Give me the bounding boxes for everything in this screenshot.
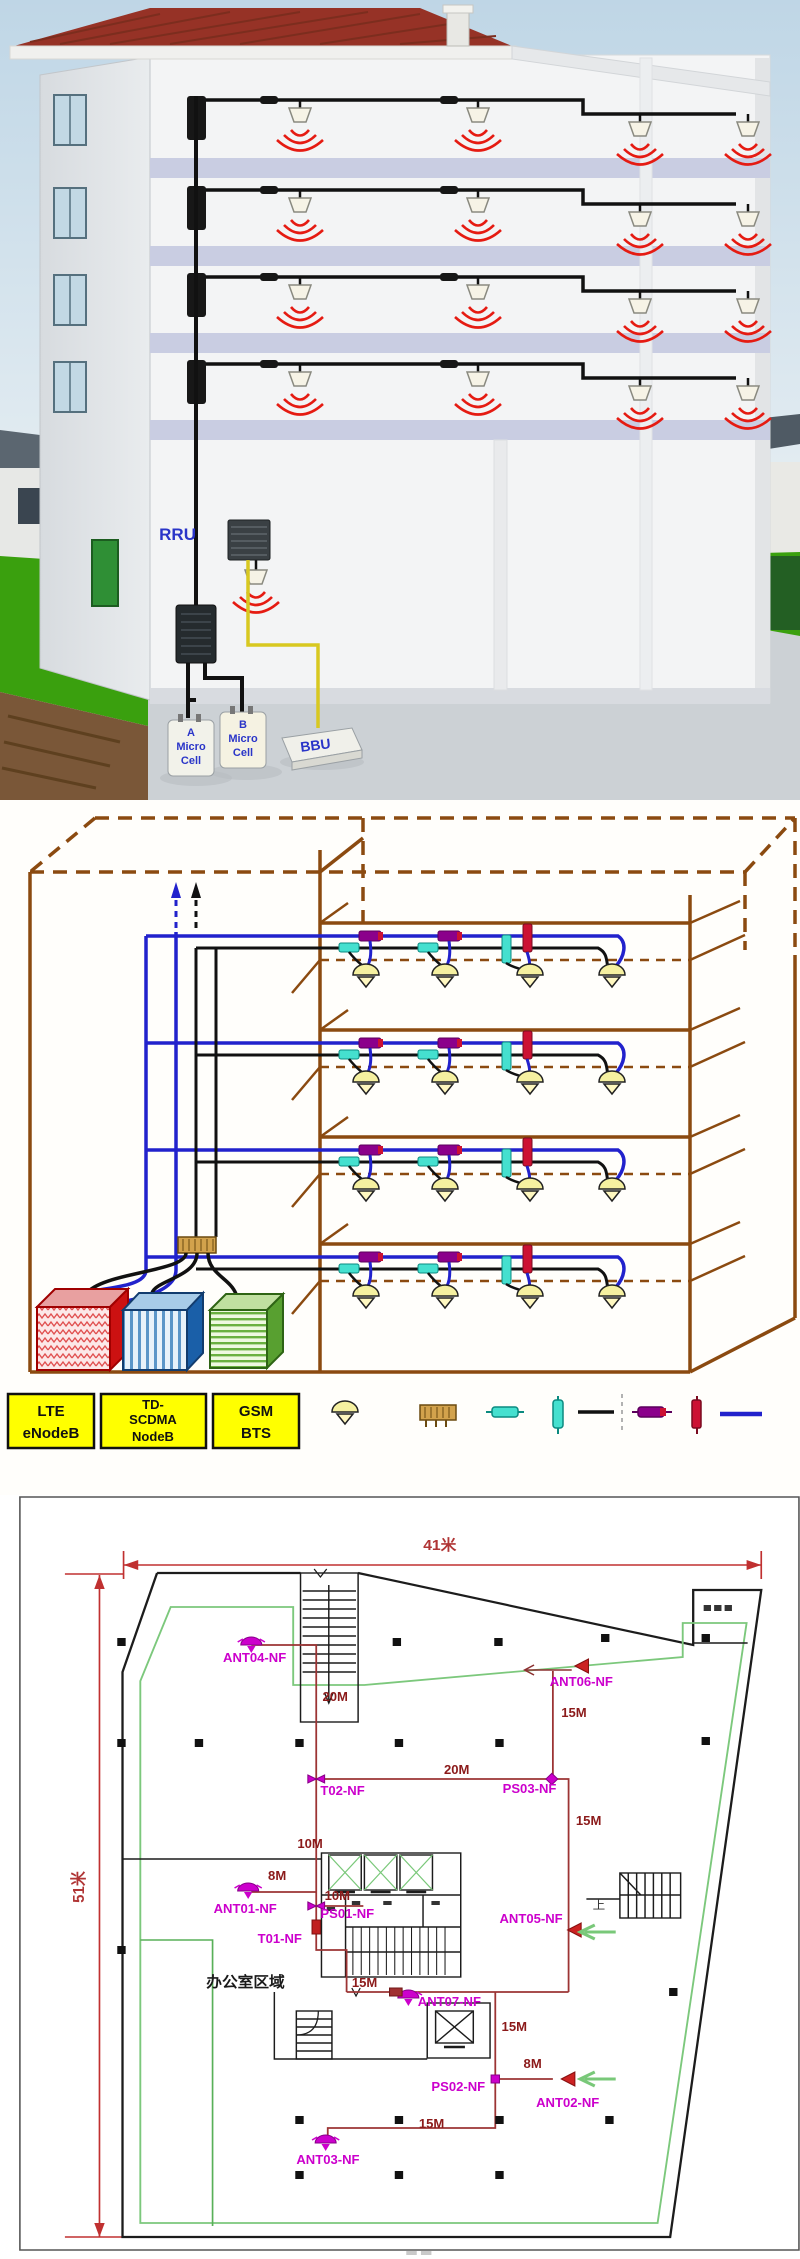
plan-label: ANT07-NF	[418, 1994, 481, 2009]
coupler-teal	[418, 1157, 438, 1166]
coupler-magenta	[438, 1252, 460, 1262]
column-square	[117, 1946, 125, 1954]
building-cutaway-illustration: RRU A Micro Cell B Micro Cell BBU	[0, 0, 800, 800]
td-scdma-nodeb-box	[123, 1293, 203, 1370]
inline-coupler	[260, 186, 278, 194]
plan-label: 15M	[352, 1975, 377, 1990]
splitter-teal	[502, 1149, 511, 1177]
column-square	[295, 2171, 303, 2179]
legend-box-tdscdma: TD- SCDMA NodeB	[101, 1394, 206, 1448]
splitter-teal	[502, 1256, 511, 1284]
splitter-red	[523, 1245, 532, 1273]
legend-splitter2-icon	[692, 1396, 701, 1434]
micro-b-line3: Cell	[233, 747, 253, 759]
coupler-teal	[418, 1264, 438, 1273]
column-square	[117, 1638, 125, 1646]
column-square	[295, 1739, 303, 1747]
plan-label: 15M	[576, 1813, 601, 1828]
legend-gsm-line2: BTS	[241, 1425, 271, 1442]
micro-b-line2: Micro	[228, 733, 258, 745]
column-square	[669, 1988, 677, 1996]
plan-label: 41米	[423, 1535, 457, 1554]
splitter-red	[523, 1031, 532, 1059]
legend-td-line3: NodeB	[132, 1429, 174, 1444]
inline-coupler	[440, 186, 458, 194]
coupler-teal	[339, 1264, 359, 1273]
plan-label: 15M	[502, 2019, 527, 2034]
plan-label: T02-NF	[320, 1783, 365, 1798]
splitter-red	[523, 1138, 532, 1166]
column-square	[395, 1739, 403, 1747]
plan-label: 办公室区域	[206, 1972, 285, 1991]
micro-a-line1: A	[187, 727, 195, 739]
plan-symbol-trect	[312, 1920, 320, 1934]
gsm-bts-box	[210, 1294, 283, 1368]
combiner-unit	[178, 1237, 216, 1253]
plan-symbol-tap	[390, 1988, 403, 1996]
coupler-teal	[339, 943, 359, 952]
plan-label: ANT03-NF	[296, 2152, 359, 2167]
column-square	[495, 2171, 503, 2179]
coupler-teal	[418, 1050, 438, 1059]
legend-td-line2: SCDMA	[129, 1412, 177, 1427]
plan-label: 20M	[444, 1762, 469, 1777]
plan-label: ANT04-NF	[223, 1650, 286, 1665]
column-square	[393, 1638, 401, 1646]
plan-label: ANT05-NF	[499, 1911, 562, 1926]
plan-label: 15M	[419, 2116, 444, 2131]
plan-symbol-sq	[491, 2075, 499, 2083]
plan-frame	[20, 1497, 799, 2250]
plan-label: PS02-NF	[431, 2079, 485, 2094]
legend-coupler-icon	[486, 1407, 524, 1417]
coupler-magenta	[438, 1038, 460, 1048]
coupler-magenta	[359, 1038, 381, 1048]
inline-coupler	[260, 360, 278, 368]
antenna-floorplan: 41米51米20M20M15M15M10M8M10M15M15M8M15MANT…	[0, 1495, 800, 2259]
plan-label: 8M	[268, 1868, 286, 1883]
plan-label: PS01-NF	[320, 1906, 374, 1921]
micro-a-line2: Micro	[176, 741, 206, 753]
column-square	[295, 2116, 303, 2124]
inline-coupler	[440, 360, 458, 368]
legend-splitter-icon	[553, 1396, 563, 1434]
coupler-teal	[339, 1050, 359, 1059]
column-square	[395, 2116, 403, 2124]
plan-label: ANT06-NF	[550, 1674, 613, 1689]
lte-enodeb-box	[37, 1289, 128, 1370]
splitter-teal	[502, 935, 511, 963]
legend-box-lte: LTE eNodeB	[8, 1394, 94, 1448]
legend-lte-line1: LTE	[37, 1403, 64, 1420]
legend-td-line1: TD-	[142, 1397, 164, 1412]
plan-label: 51米	[68, 1871, 87, 1903]
inline-coupler	[440, 96, 458, 104]
coupler-magenta	[359, 1145, 381, 1155]
micro-cell-b: B Micro Cell	[220, 706, 266, 768]
column-square	[494, 1638, 502, 1646]
das-schematic: LTE eNodeB TD- SCDMA NodeB GSM BTS	[0, 800, 800, 1495]
column-square	[195, 1739, 203, 1747]
inline-coupler	[440, 273, 458, 281]
coupler-teal	[339, 1157, 359, 1166]
column-square	[702, 1737, 710, 1745]
plan-label: 上	[593, 1898, 606, 1912]
plan-label: 8M	[524, 2056, 542, 2071]
column-square	[601, 1634, 609, 1642]
plan-label: 10M	[325, 1888, 350, 1903]
plan-label: ANT02-NF	[536, 2095, 599, 2110]
micro-cell-a: A Micro Cell	[168, 714, 214, 776]
splitter-teal	[502, 1042, 511, 1070]
legend-lte-line2: eNodeB	[23, 1425, 80, 1442]
micro-a-line3: Cell	[181, 755, 201, 767]
legend-box-gsm: GSM BTS	[213, 1394, 299, 1448]
column-square	[702, 1634, 710, 1642]
building-shell	[10, 5, 770, 704]
plan-label: PS03-NF	[503, 1781, 557, 1796]
column-square	[495, 2116, 503, 2124]
coupler-magenta	[438, 1145, 460, 1155]
coupler-teal	[418, 943, 438, 952]
inline-coupler	[260, 96, 278, 104]
plan-label: 20M	[323, 1689, 348, 1704]
column-square	[117, 1739, 125, 1747]
plan-label: T01-NF	[258, 1931, 303, 1946]
rru-label: RRU	[159, 525, 196, 544]
inline-coupler	[260, 273, 278, 281]
plan-label: 15M	[561, 1705, 586, 1720]
column-square	[395, 2171, 403, 2179]
micro-b-line1: B	[239, 719, 247, 731]
legend-coupler2-icon	[632, 1407, 672, 1417]
column-square	[605, 2116, 613, 2124]
plan-label: 10M	[297, 1836, 322, 1851]
entrance-door	[92, 540, 118, 606]
coupler-magenta	[359, 931, 381, 941]
column-square	[495, 1739, 503, 1747]
legend-gsm-line1: GSM	[239, 1403, 273, 1420]
coupler-magenta	[359, 1252, 381, 1262]
splitter-red	[523, 924, 532, 952]
plan-label: ANT01-NF	[214, 1901, 277, 1916]
composite-das-figure: RRU A Micro Cell B Micro Cell BBU	[0, 0, 800, 2259]
coupler-magenta	[438, 931, 460, 941]
